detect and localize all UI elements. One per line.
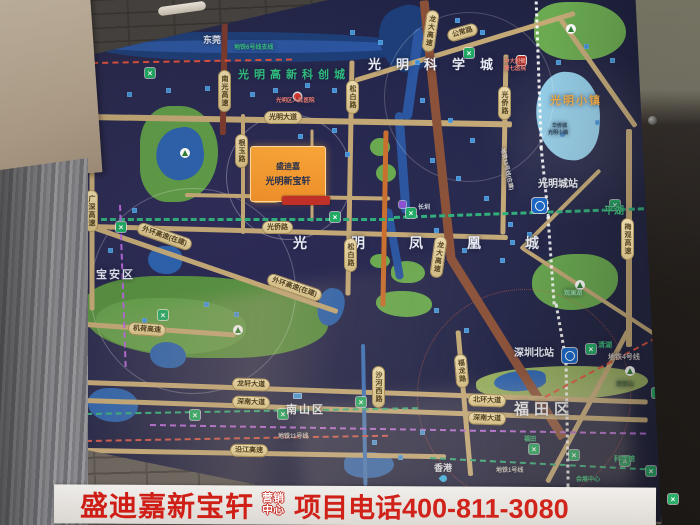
metro-station-icon: × [668, 494, 678, 504]
showroom-photo: ××××××××××××××××+光明大道田寮路光侨路光侨路根玉路松白路松白路公… [0, 0, 700, 525]
